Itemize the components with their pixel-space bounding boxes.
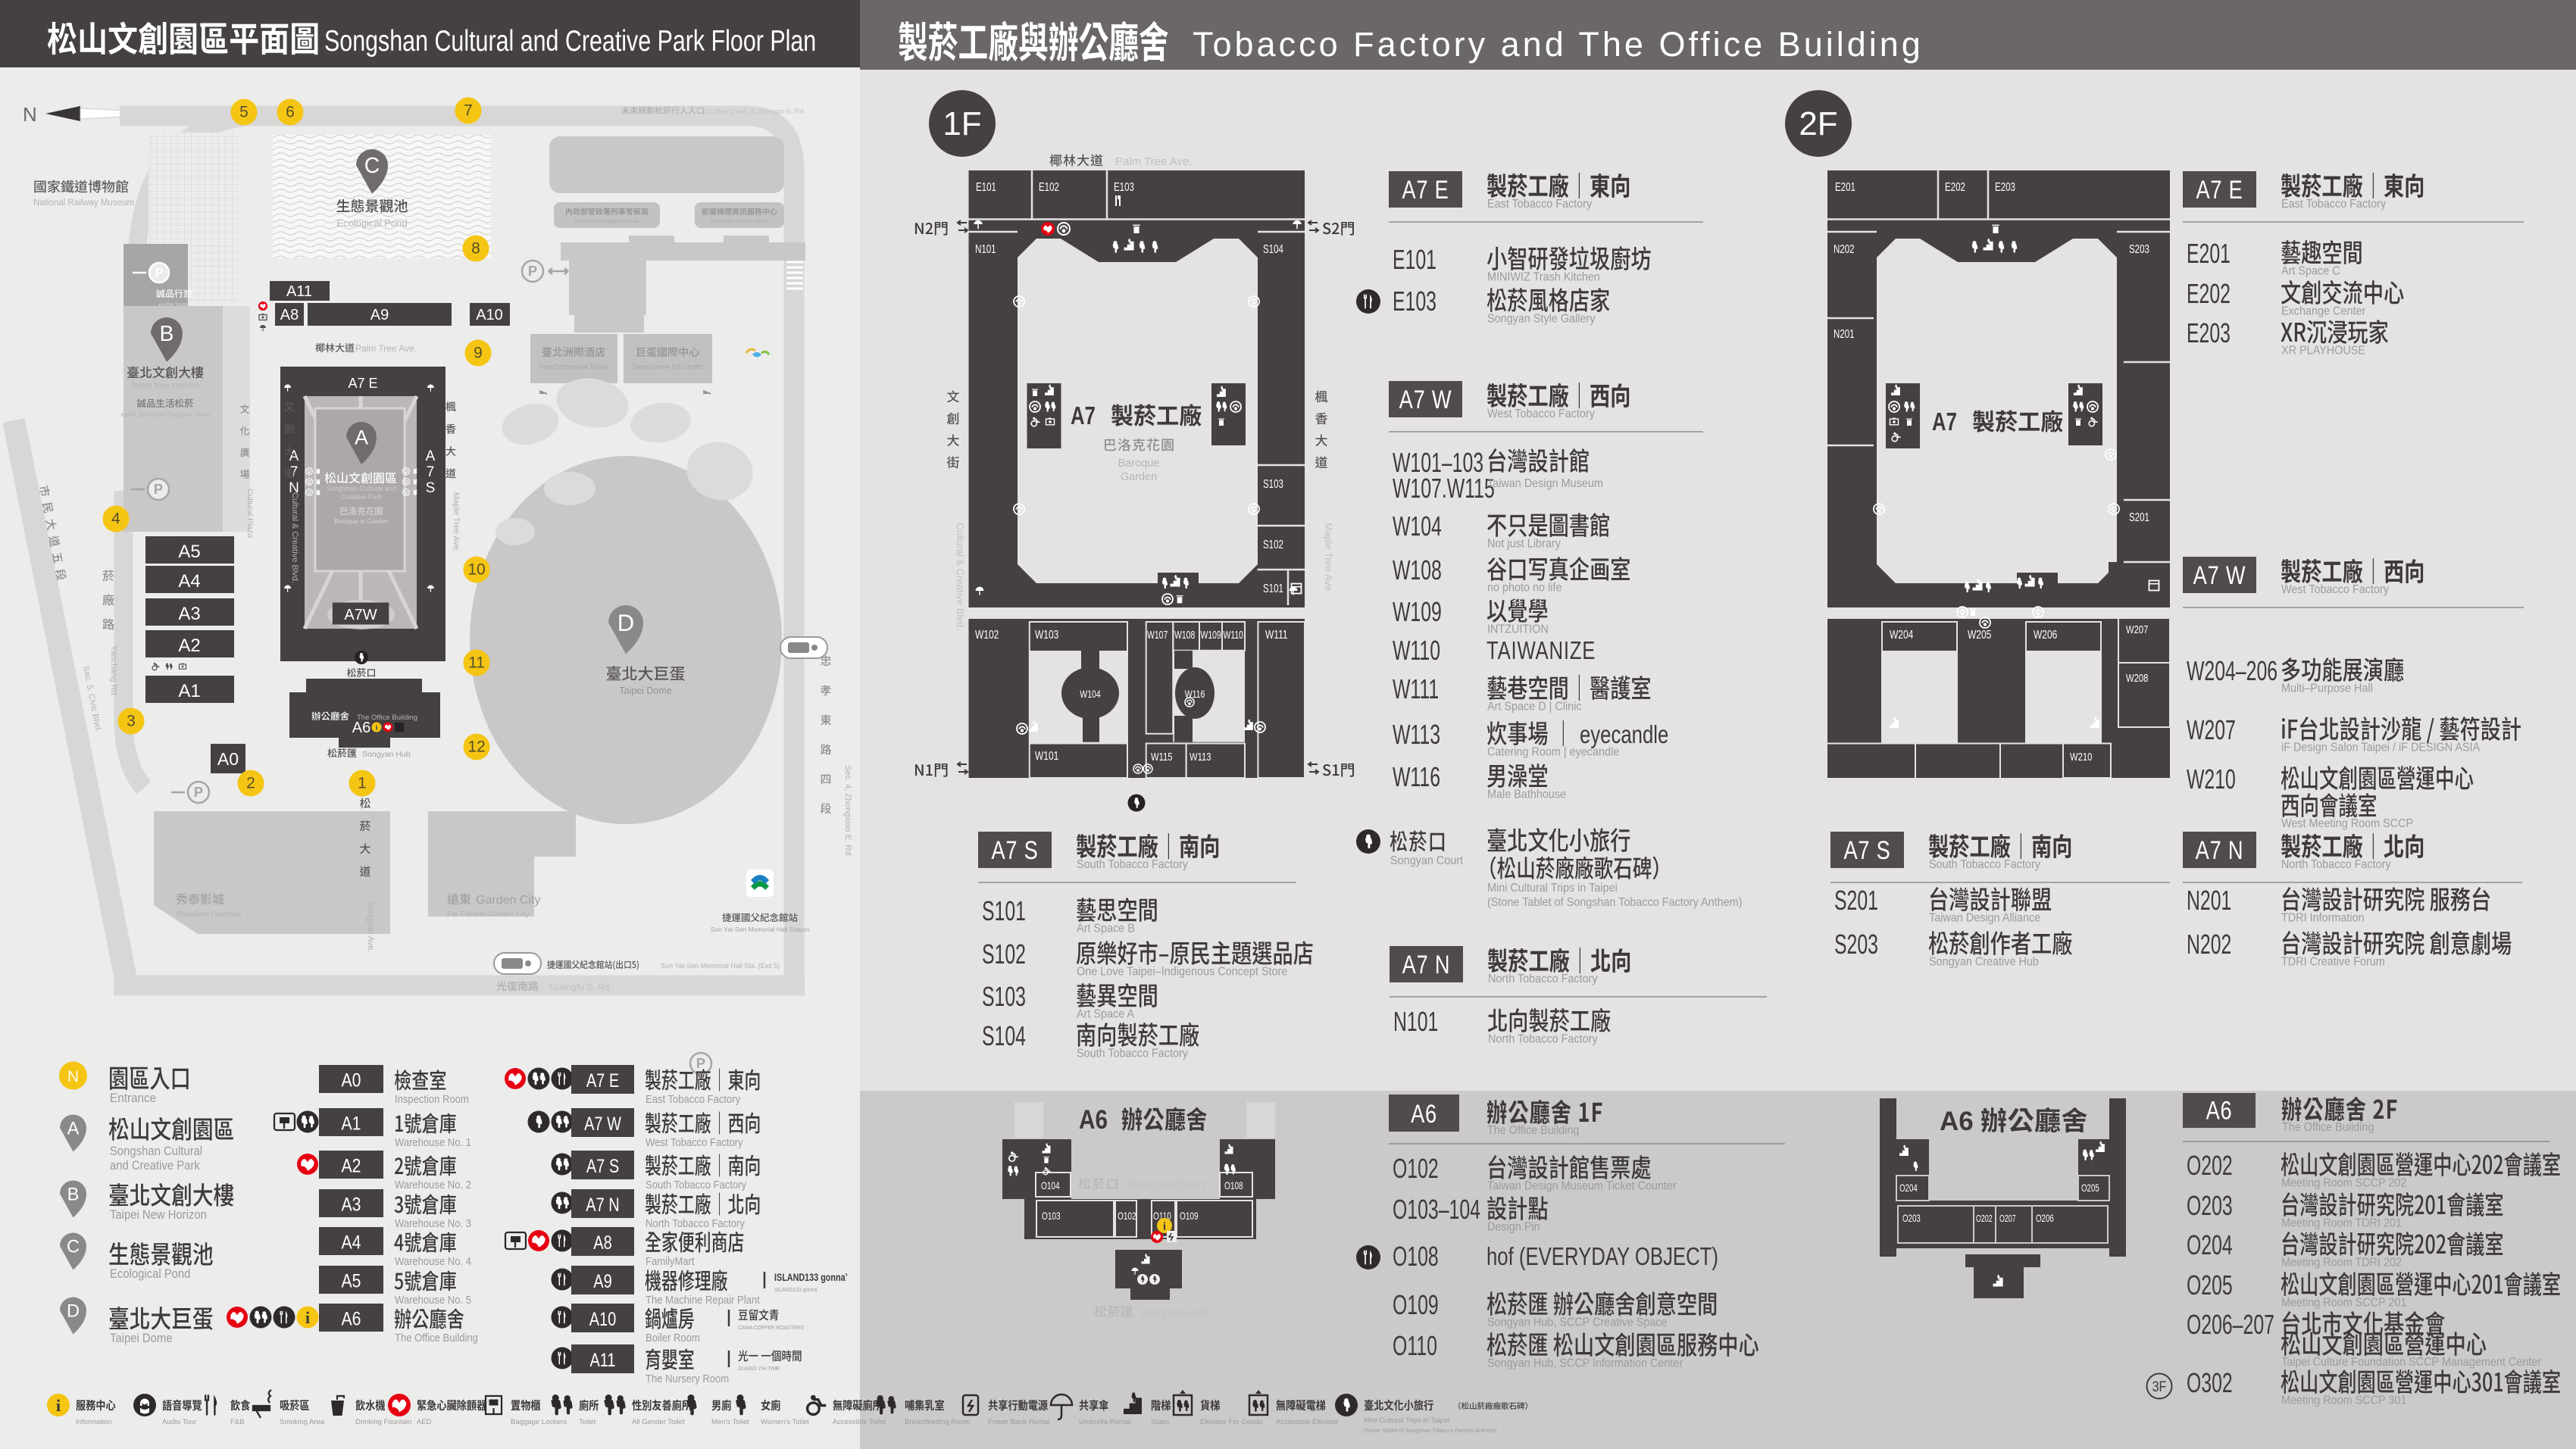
svg-text:W204: W204 — [1890, 627, 1913, 641]
svg-text:Songyan Ave.: Songyan Ave. — [366, 901, 375, 953]
svg-text:P: P — [528, 264, 537, 279]
svg-text:B: B — [67, 1185, 80, 1204]
svg-text:Lo Sheng Ave. & Zhongpo N. Rd.: Lo Sheng Ave. & Zhongpo N. Rd. — [705, 108, 805, 115]
svg-text:4: 4 — [111, 511, 120, 528]
svg-text:AED: AED — [417, 1418, 432, 1426]
svg-text:O109: O109 — [1180, 1210, 1199, 1222]
svg-text:iF Design Salon Taipei / iF DE: iF Design Salon Taipei / iF DESIGN ASIA — [2281, 741, 2481, 754]
svg-text:W104: W104 — [1080, 689, 1101, 701]
svg-text:i: i — [56, 1396, 61, 1415]
svg-text:FamilyMart: FamilyMart — [646, 1255, 695, 1267]
svg-text:N201: N201 — [2187, 885, 2231, 916]
svg-text:The Machine Repair Plant: The Machine Repair Plant — [646, 1294, 760, 1306]
svg-text:Songshan Cultural and Creative: Songshan Cultural and Creative Park Floo… — [324, 24, 816, 57]
svg-text:A1: A1 — [178, 681, 200, 701]
svg-text:A7 E: A7 E — [586, 1070, 619, 1091]
svg-text:Baroque in Garden: Baroque in Garden — [334, 517, 389, 525]
svg-text:3: 3 — [127, 713, 136, 730]
svg-text:GUANG YIH TIME: GUANG YIH TIME — [738, 1366, 780, 1372]
svg-text:The Office Building: The Office Building — [2282, 1120, 2374, 1134]
svg-text:E201: E201 — [2187, 238, 2231, 269]
svg-text:E201: E201 — [1835, 180, 1855, 193]
svg-text:O207: O207 — [1999, 1213, 2016, 1224]
svg-text:A: A — [67, 1119, 80, 1138]
svg-text:A7 N: A7 N — [2196, 835, 2244, 865]
svg-text:Creative Park: Creative Park — [341, 493, 383, 501]
svg-text:West Tobacco Factory: West Tobacco Factory — [646, 1136, 743, 1148]
svg-text:W107.W115: W107.W115 — [1393, 473, 1495, 504]
svg-text:(Stone Tablet of Songshan Toba: (Stone Tablet of Songshan Tobacco Factor… — [1364, 1427, 1497, 1434]
svg-text:O202: O202 — [2187, 1150, 2233, 1181]
svg-text:Men's Toilet: Men's Toilet — [711, 1418, 749, 1426]
svg-text:W111: W111 — [1393, 673, 1439, 704]
svg-text:E102: E102 — [1039, 180, 1059, 193]
svg-text:Meeting Room SCCP 202: Meeting Room SCCP 202 — [2281, 1176, 2406, 1190]
svg-text:TDRI Creative Forum: TDRI Creative Forum — [2281, 955, 2385, 969]
svg-text:i: i — [376, 724, 378, 732]
svg-text:South Tobacco Factory: South Tobacco Factory — [1077, 857, 1188, 871]
svg-text:1: 1 — [358, 775, 367, 792]
svg-text:Design Pin: Design Pin — [1487, 1220, 1540, 1234]
svg-text:Warehouse No. 5: Warehouse No. 5 — [395, 1294, 471, 1306]
svg-text:Songyan Hub: Songyan Hub — [1140, 1307, 1209, 1319]
svg-text:E202: E202 — [2187, 278, 2231, 309]
svg-text:A: A — [426, 448, 436, 464]
svg-text:A6: A6 — [352, 720, 370, 736]
svg-text:N101: N101 — [975, 242, 996, 255]
svg-text:S103: S103 — [1263, 476, 1283, 490]
svg-text:Baggage Lockers: Baggage Lockers — [511, 1418, 567, 1426]
svg-text:TAIWANIZE: TAIWANIZE — [1487, 637, 1596, 665]
svg-text:6: 6 — [286, 104, 295, 121]
svg-text:Taipei New Horizon: Taipei New Horizon — [131, 381, 200, 390]
svg-text:Songyan Hub, SCCP Information: Songyan Hub, SCCP Information Center — [1487, 1357, 1683, 1370]
svg-text:Meeting Room TDRI 202: Meeting Room TDRI 202 — [2281, 1256, 2402, 1269]
svg-text:W111: W111 — [1265, 627, 1288, 641]
svg-text:A7 W: A7 W — [2193, 561, 2246, 590]
svg-text:A4: A4 — [342, 1232, 361, 1253]
svg-text:Taipei Dome: Taipei Dome — [110, 1332, 173, 1345]
svg-text:A6: A6 — [1411, 1099, 1437, 1129]
svg-text:hof (EVERYDAY OBJECT): hof (EVERYDAY OBJECT) — [1487, 1243, 1718, 1271]
svg-text:Palm Tree Ave.: Palm Tree Ave. — [1115, 155, 1192, 168]
svg-text:The Office Building: The Office Building — [1487, 1123, 1579, 1137]
svg-text:Cultural & Creative Blvd.: Cultural & Creative Blvd. — [290, 492, 299, 583]
svg-text:A7 W: A7 W — [1399, 385, 1452, 414]
svg-text:2: 2 — [246, 775, 255, 792]
svg-text:Women's Toilet: Women's Toilet — [761, 1418, 809, 1426]
svg-text:West Tobacco Factory: West Tobacco Factory — [1487, 407, 1595, 420]
svg-text:Warehouse No. 3: Warehouse No. 3 — [395, 1217, 471, 1229]
svg-text:E202: E202 — [1945, 180, 1965, 193]
svg-text:One Love Taipei–Indigenous Con: One Love Taipei–Indigenous Concept Store — [1077, 965, 1287, 979]
svg-text:Taipei New Horizon: Taipei New Horizon — [110, 1208, 207, 1222]
svg-text:A6: A6 — [342, 1308, 361, 1329]
svg-text:Boiler Room: Boiler Room — [646, 1332, 700, 1344]
svg-text:Art Space C: Art Space C — [2281, 264, 2340, 278]
svg-text:Taipei Dome Intl Center: Taipei Dome Intl Center — [632, 363, 703, 370]
svg-text:East Tobacco Factory: East Tobacco Factory — [1487, 197, 1593, 211]
svg-text:S101: S101 — [982, 895, 1026, 926]
svg-text:A7 N: A7 N — [586, 1194, 619, 1216]
svg-text:P: P — [696, 1056, 705, 1071]
svg-text:W113: W113 — [1190, 750, 1211, 763]
svg-text:A2: A2 — [178, 635, 200, 656]
svg-text:Information Service Center: Information Service Center — [710, 219, 769, 224]
svg-text:W110: W110 — [1224, 629, 1243, 641]
svg-text:7: 7 — [427, 464, 435, 480]
svg-text:i: i — [305, 1309, 310, 1327]
svg-text:East Tobacco Factory: East Tobacco Factory — [2281, 197, 2387, 211]
svg-text:S104: S104 — [1263, 242, 1283, 255]
svg-text:East Tobacco Factory: East Tobacco Factory — [646, 1093, 740, 1105]
svg-text:A11: A11 — [589, 1350, 615, 1371]
svg-text:A5: A5 — [342, 1270, 361, 1291]
svg-text:W205: W205 — [1968, 627, 1991, 641]
svg-text:A1: A1 — [342, 1113, 361, 1134]
svg-text:Songyan Court: Songyan Court — [1390, 854, 1464, 867]
svg-text:O109: O109 — [1393, 1289, 1439, 1320]
svg-text:P: P — [155, 266, 163, 280]
svg-text:ISLAND133 gonnaʼ: ISLAND133 gonnaʼ — [774, 1272, 848, 1283]
svg-text:Maple Tree Ave.: Maple Tree Ave. — [452, 492, 461, 552]
svg-text:O205: O205 — [2187, 1269, 2233, 1301]
svg-text:A6: A6 — [1940, 1107, 1974, 1136]
svg-text:9: 9 — [474, 345, 483, 362]
svg-text:Stairs: Stairs — [1151, 1418, 1170, 1426]
svg-text:South Tobacco Factory: South Tobacco Factory — [1077, 1047, 1188, 1060]
svg-text:W110: W110 — [1393, 635, 1440, 666]
svg-text:Ecological Pond: Ecological Pond — [110, 1267, 190, 1281]
svg-text:W207: W207 — [2187, 714, 2236, 745]
svg-text:O103–104: O103–104 — [1393, 1194, 1480, 1225]
svg-text:A7 S: A7 S — [1843, 835, 1890, 865]
svg-text:eslite Spectrum Songyan Store: eslite Spectrum Songyan Store — [120, 411, 209, 418]
svg-text:Accessible Elevator: Accessible Elevator — [1276, 1418, 1339, 1426]
svg-text:Songyan Court: Songyan Court — [1129, 1179, 1205, 1191]
svg-text:5: 5 — [239, 104, 249, 121]
svg-text:The Nursery Room: The Nursery Room — [646, 1372, 729, 1385]
svg-text:and Creative Park: and Creative Park — [110, 1159, 200, 1173]
svg-text:B: B — [160, 322, 174, 346]
svg-text:A7 S: A7 S — [586, 1156, 619, 1177]
svg-text:North Tobacco Factory: North Tobacco Factory — [646, 1217, 745, 1229]
svg-text:1F: 1F — [943, 105, 981, 142]
svg-text:A7W: A7W — [344, 607, 377, 623]
svg-text:W210: W210 — [2070, 750, 2092, 763]
svg-text:Breastfeeding Room: Breastfeeding Room — [905, 1418, 971, 1426]
svg-text:Maple Tree Ave.: Maple Tree Ave. — [1323, 523, 1334, 594]
svg-text:North Tobacco Factory: North Tobacco Factory — [1488, 972, 1598, 985]
svg-text:South Tobacco Factory: South Tobacco Factory — [646, 1179, 746, 1191]
svg-text:W109: W109 — [1393, 596, 1442, 627]
svg-text:A11: A11 — [286, 283, 312, 300]
svg-text:O205: O205 — [2081, 1183, 2099, 1194]
svg-text:11: 11 — [468, 654, 485, 672]
svg-text:A7 E: A7 E — [1402, 175, 1449, 205]
svg-text:Palm Tree Ave.: Palm Tree Ave. — [355, 343, 417, 354]
svg-text:A7 W: A7 W — [584, 1113, 621, 1135]
svg-text:Guangfu S. Rd.: Guangfu S. Rd. — [549, 982, 612, 992]
svg-text:O203: O203 — [2187, 1190, 2233, 1221]
svg-text:A7 S: A7 S — [991, 835, 1038, 865]
svg-text:N202: N202 — [1834, 242, 1855, 255]
svg-text:W113: W113 — [1393, 719, 1440, 750]
svg-text:North Tobacco Factory: North Tobacco Factory — [1488, 1032, 1598, 1046]
svg-text:W102: W102 — [975, 627, 999, 641]
svg-text:South Tobacco Factory: South Tobacco Factory — [1929, 857, 2040, 871]
svg-text:Ecological Pond: Ecological Pond — [336, 217, 407, 229]
svg-text:A6: A6 — [1079, 1105, 1108, 1135]
svg-text:S104: S104 — [982, 1020, 1026, 1051]
svg-text:A0: A0 — [217, 749, 239, 769]
svg-text:F&B: F&B — [230, 1418, 244, 1426]
svg-text:O204: O204 — [2187, 1229, 2233, 1260]
svg-text:S201: S201 — [2129, 510, 2149, 523]
svg-text:Songshan Cultural and: Songshan Cultural and — [327, 485, 396, 492]
svg-text:N202: N202 — [2187, 929, 2231, 960]
svg-text:P: P — [154, 482, 163, 497]
svg-text:Drinking Fountain: Drinking Fountain — [355, 1418, 411, 1426]
svg-text:O110: O110 — [1393, 1330, 1437, 1361]
svg-text:O108: O108 — [1393, 1241, 1439, 1272]
svg-text:Power Bank Rental: Power Bank Rental — [988, 1418, 1049, 1426]
svg-text:Taiwan Design Museum Ticket Co: Taiwan Design Museum Ticket Counter — [1487, 1179, 1677, 1193]
svg-text:i: i — [1163, 1221, 1166, 1233]
svg-text:Meeting Room SCCP 201: Meeting Room SCCP 201 — [2281, 1296, 2406, 1310]
svg-text:O104: O104 — [1041, 1179, 1060, 1191]
svg-text:E203: E203 — [1995, 180, 2015, 193]
svg-text:Warehouse No. 1: Warehouse No. 1 — [395, 1136, 471, 1148]
svg-text:3F: 3F — [2152, 1379, 2167, 1395]
svg-text:N: N — [23, 103, 37, 126]
svg-text:W206: W206 — [2034, 627, 2057, 641]
svg-text:A10: A10 — [589, 1309, 617, 1330]
svg-text:Baroque: Baroque — [1118, 457, 1160, 470]
svg-text:Taiwan Design Alliance: Taiwan Design Alliance — [1929, 911, 2040, 925]
svg-text:10: 10 — [467, 561, 485, 579]
svg-text:W116: W116 — [1393, 761, 1440, 792]
svg-text:C: C — [364, 154, 380, 178]
svg-text:D: D — [617, 610, 634, 636]
svg-text:O302: O302 — [2187, 1367, 2233, 1398]
svg-text:O203: O203 — [1902, 1213, 1921, 1225]
svg-text:Criminal Investigation Bureau: Criminal Investigation Bureau — [575, 219, 639, 224]
svg-text:O206–207: O206–207 — [2187, 1309, 2274, 1340]
svg-text:S102: S102 — [1263, 537, 1283, 551]
svg-text:Meeting Room SCCP 301: Meeting Room SCCP 301 — [2281, 1394, 2406, 1407]
svg-text:Yanchang Rd.: Yanchang Rd. — [109, 645, 118, 698]
svg-text:C: C — [67, 1237, 80, 1257]
svg-text:A4: A4 — [178, 571, 200, 592]
svg-text:A2: A2 — [342, 1155, 361, 1176]
svg-text:7: 7 — [464, 102, 473, 120]
svg-text:O102: O102 — [1118, 1210, 1136, 1222]
svg-text:O103: O103 — [1042, 1210, 1061, 1222]
svg-text:A6: A6 — [2206, 1096, 2233, 1126]
svg-text:A7 E: A7 E — [348, 376, 377, 391]
svg-text:A5: A5 — [178, 542, 200, 562]
svg-text:Songshan Cultural: Songshan Cultural — [110, 1145, 202, 1158]
svg-text:Exchange Center: Exchange Center — [2281, 304, 2365, 318]
svg-text:no photo no life: no photo no life — [1487, 581, 1562, 595]
svg-text:N: N — [67, 1068, 79, 1085]
svg-text:A3: A3 — [342, 1194, 361, 1215]
svg-text:Male Bathhouse: Male Bathhouse — [1487, 788, 1566, 801]
svg-text:Garden: Garden — [1121, 471, 1157, 483]
svg-text:Catering Room | eyecandle: Catering Room | eyecandle — [1487, 745, 1619, 759]
svg-text:E101: E101 — [976, 180, 996, 193]
svg-text:MINIWIZ Trash Kitchen: MINIWIZ Trash Kitchen — [1487, 270, 1600, 284]
svg-text:S: S — [426, 480, 436, 496]
svg-text:W104: W104 — [1393, 511, 1442, 542]
svg-text:North Tobacco Factory: North Tobacco Factory — [2281, 857, 2391, 871]
svg-text:W115: W115 — [1151, 750, 1173, 763]
svg-text:INTZUITION: INTZUITION — [1487, 623, 1549, 636]
svg-text:A9: A9 — [370, 307, 389, 323]
svg-text:A10: A10 — [476, 307, 503, 323]
svg-text:(Stone Tablet of Songshan Toba: (Stone Tablet of Songshan Tobacco Factor… — [1487, 895, 1742, 909]
svg-text:S103: S103 — [982, 981, 1026, 1012]
svg-text:All Gender Toilet: All Gender Toilet — [632, 1418, 685, 1426]
svg-text:N201: N201 — [1834, 326, 1855, 340]
svg-text:A7: A7 — [1071, 402, 1096, 430]
svg-text:A7 N: A7 N — [1402, 950, 1451, 979]
svg-text:S102: S102 — [982, 938, 1026, 970]
svg-text:Smoking Area: Smoking Area — [280, 1418, 325, 1426]
svg-text:ISLAND133 gonnaʼ: ISLAND133 gonnaʼ — [774, 1287, 818, 1293]
svg-text:E101: E101 — [1393, 244, 1436, 275]
svg-text:W208: W208 — [2126, 671, 2148, 684]
svg-text:W109: W109 — [1201, 629, 1221, 641]
svg-text:Tobacco Factory and The Office: Tobacco Factory and The Office Building — [1193, 25, 1924, 64]
svg-text:Songyan Hub: Songyan Hub — [362, 750, 411, 759]
svg-text:W207: W207 — [2126, 623, 2148, 635]
svg-text:Not just Library: Not just Library — [1487, 537, 1561, 551]
svg-text:Art Space B: Art Space B — [1077, 922, 1135, 935]
svg-text:Mini Cultural Trips in Taipei: Mini Cultural Trips in Taipei — [1487, 881, 1618, 895]
svg-text:Warehouse No. 4: Warehouse No. 4 — [395, 1255, 471, 1267]
svg-text:Sec. 4, Zhongxiao E. Rd.: Sec. 4, Zhongxiao E. Rd. — [843, 765, 852, 857]
svg-text:S201: S201 — [1834, 885, 1878, 916]
svg-text:West Meeting Room SCCP: West Meeting Room SCCP — [2281, 817, 2413, 830]
svg-text:A7 E: A7 E — [2196, 175, 2243, 205]
svg-text:Entrance: Entrance — [110, 1091, 156, 1105]
svg-text:S101: S101 — [1263, 581, 1283, 595]
svg-text:P: P — [194, 785, 203, 800]
svg-text:Songyan Hub, SCCP Creative Spa: Songyan Hub, SCCP Creative Space — [1487, 1316, 1667, 1329]
svg-text:Accessible Toilet: Accessible Toilet — [833, 1418, 886, 1426]
svg-text:Inspection Room: Inspection Room — [395, 1093, 469, 1105]
svg-text:O206: O206 — [2036, 1213, 2054, 1225]
svg-text:S203: S203 — [2129, 242, 2149, 255]
svg-text:West Tobacco Factory: West Tobacco Factory — [2281, 582, 2389, 596]
svg-text:E203: E203 — [2187, 317, 2231, 348]
svg-text:Showtime Cinemas: Showtime Cinemas — [176, 910, 241, 919]
svg-text:Umbrella Rental: Umbrella Rental — [1079, 1418, 1130, 1426]
svg-text:Cultural & Creative Blvd.: Cultural & Creative Blvd. — [955, 523, 966, 630]
svg-text:Meeting Room TDRI 201: Meeting Room TDRI 201 — [2281, 1216, 2402, 1230]
svg-text:Songyan Creative Hub: Songyan Creative Hub — [1929, 955, 2039, 969]
svg-text:Art Space A: Art Space A — [1077, 1007, 1135, 1021]
svg-text:Garden City: Garden City — [476, 894, 540, 907]
svg-text:O202: O202 — [1976, 1213, 1993, 1224]
svg-text:Taipei Dome: Taipei Dome — [619, 685, 672, 696]
svg-text:N101: N101 — [1393, 1006, 1438, 1037]
svg-text:E103: E103 — [1114, 180, 1134, 193]
svg-text:A7: A7 — [1932, 408, 1957, 436]
svg-text:Far Eastern Garden City: Far Eastern Garden City — [447, 910, 529, 919]
svg-text:Elevator For Goods: Elevator For Goods — [1200, 1418, 1263, 1426]
svg-text:W108: W108 — [1393, 554, 1442, 586]
svg-text:InterContinental Taipei: InterContinental Taipei — [539, 363, 607, 370]
svg-text:A: A — [289, 448, 299, 464]
svg-text:TDRI Information: TDRI Information — [2281, 911, 2365, 925]
svg-text:W101: W101 — [1035, 748, 1058, 762]
svg-text:Sun Yat-Sen Memorial Hall Stat: Sun Yat-Sen Memorial Hall Station — [711, 926, 810, 933]
svg-text:A9: A9 — [593, 1271, 611, 1292]
svg-text:XR PLAYHOUSE: XR PLAYHOUSE — [2281, 344, 2365, 358]
svg-text:W210: W210 — [2187, 764, 2236, 795]
svg-text:O102: O102 — [1393, 1153, 1439, 1184]
svg-text:Mini Cultural Trips in Taipei: Mini Cultural Trips in Taipei — [1364, 1416, 1449, 1425]
svg-text:Toilet: Toilet — [579, 1418, 596, 1426]
svg-text:Cultural Plaza: Cultural Plaza — [245, 489, 255, 539]
svg-text:W204–206: W204–206 — [2187, 655, 2277, 686]
svg-text:Taipei Culture Foundation SCCP: Taipei Culture Foundation SCCP Managemen… — [2281, 1355, 2541, 1369]
svg-text:Songyan Style Gallery: Songyan Style Gallery — [1487, 312, 1596, 326]
svg-text:The Office Building: The Office Building — [395, 1332, 478, 1344]
svg-text:W107: W107 — [1147, 629, 1168, 641]
svg-text:Taiwan Design Museum: Taiwan Design Museum — [1487, 476, 1603, 490]
svg-text:Art Space D | Clinic: Art Space D | Clinic — [1487, 700, 1582, 714]
svg-text:W103: W103 — [1035, 627, 1058, 641]
svg-text:A3: A3 — [178, 604, 200, 624]
svg-text:Warehouse No. 2: Warehouse No. 2 — [395, 1179, 471, 1191]
svg-text:Audio Tour: Audio Tour — [162, 1418, 196, 1426]
svg-text:W108: W108 — [1174, 629, 1195, 641]
svg-text:A: A — [355, 426, 368, 449]
svg-text:S203: S203 — [1834, 929, 1878, 960]
svg-text:8: 8 — [471, 240, 480, 258]
svg-text:Information: Information — [76, 1418, 112, 1426]
svg-text:E103: E103 — [1393, 286, 1436, 317]
svg-text:A8: A8 — [593, 1232, 611, 1254]
svg-text:Multi–Purpose Hall: Multi–Purpose Hall — [2281, 682, 2373, 695]
svg-text:D: D — [67, 1301, 80, 1321]
svg-text:2F: 2F — [1799, 105, 1837, 142]
svg-text:A0: A0 — [342, 1070, 361, 1091]
svg-text:Sun Yat-Sen Memorial Hall Sta.: Sun Yat-Sen Memorial Hall Sta. (Exit 5) — [661, 962, 780, 970]
svg-text:A8: A8 — [280, 307, 299, 323]
svg-text:O108: O108 — [1224, 1179, 1243, 1191]
svg-text:CAMA COFFEE ROASTERS: CAMA COFFEE ROASTERS — [738, 1325, 805, 1331]
svg-text:O204: O204 — [1899, 1183, 1918, 1194]
svg-text:12: 12 — [467, 739, 485, 756]
svg-text:National Railway Museum: National Railway Museum — [33, 198, 134, 208]
